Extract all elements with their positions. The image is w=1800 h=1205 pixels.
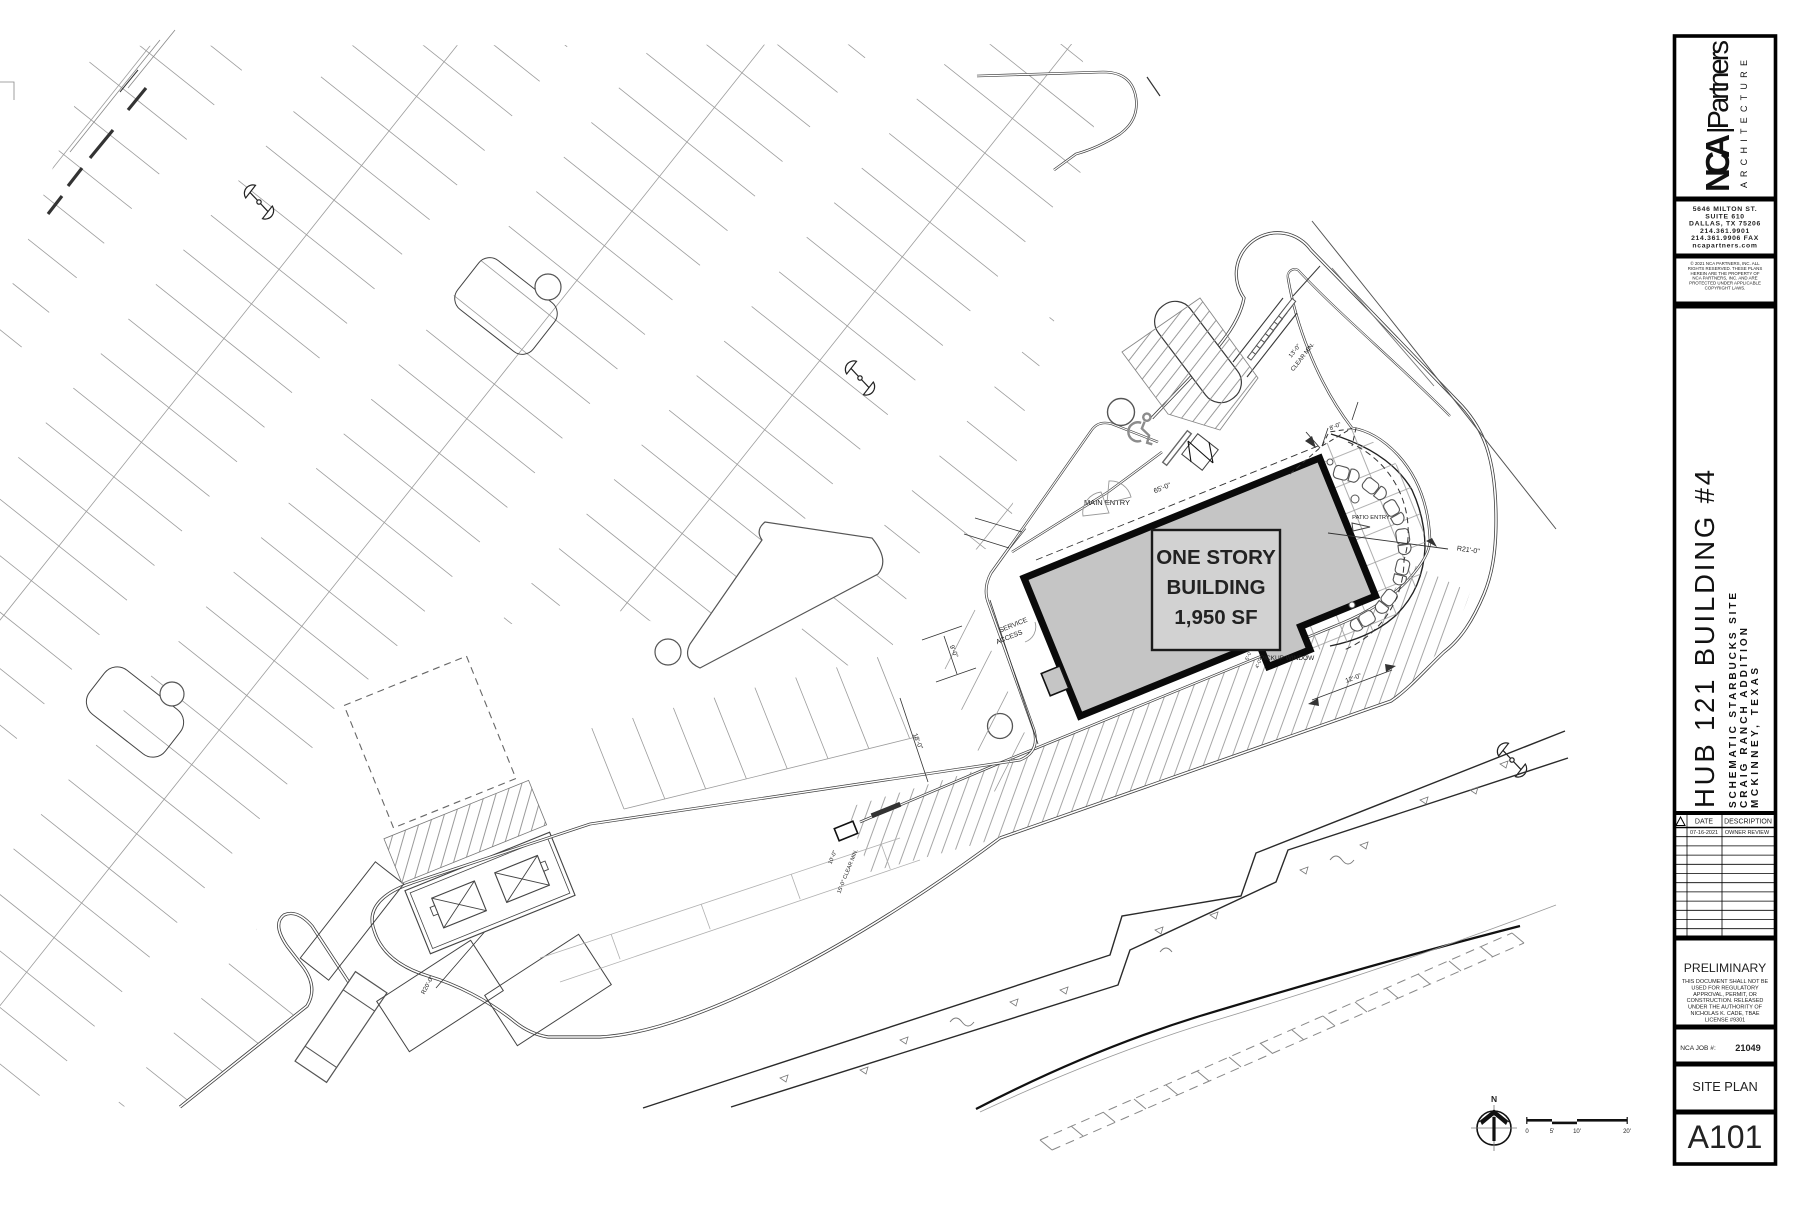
svg-text:CRAIG RANCH ADDITION: CRAIG RANCH ADDITION (1739, 628, 1750, 808)
svg-text:NCA JOB #:: NCA JOB #: (1680, 1045, 1716, 1052)
svg-text:NCA: NCA (1699, 134, 1736, 192)
svg-text:SUITE 610: SUITE 610 (1705, 213, 1745, 220)
svg-text:DALLAS, TX 75206: DALLAS, TX 75206 (1689, 221, 1761, 228)
svg-text:LICENSE #9301: LICENSE #9301 (1705, 1017, 1745, 1023)
svg-text:THIS DOCUMENT SHALL NOT BE: THIS DOCUMENT SHALL NOT BE (1682, 979, 1769, 985)
svg-text:A101: A101 (1688, 1119, 1763, 1155)
svg-text:214.361.9906 FAX: 214.361.9906 FAX (1691, 235, 1759, 242)
svg-text:PRELIMINARY: PRELIMINARY (1684, 961, 1766, 975)
svg-text:COPYRIGHT LAWS.: COPYRIGHT LAWS. (1705, 286, 1746, 291)
svg-text:UNDER THE AUTHORITY OF: UNDER THE AUTHORITY OF (1688, 1005, 1763, 1011)
svg-text:DESCRIPTION: DESCRIPTION (1724, 819, 1772, 826)
svg-text:BUILDING: BUILDING (1166, 576, 1265, 599)
svg-text:USED FOR REGULATORY: USED FOR REGULATORY (1691, 985, 1759, 991)
svg-text:OWNER REVIEW: OWNER REVIEW (1725, 830, 1770, 836)
svg-text:N: N (1491, 1094, 1497, 1104)
svg-text:HUB 121 BUILDING #4: HUB 121 BUILDING #4 (1689, 470, 1720, 808)
svg-text:21049: 21049 (1735, 1043, 1761, 1053)
svg-text:5': 5' (1550, 1129, 1554, 1135)
svg-text:PATIO ENTRY: PATIO ENTRY (1352, 515, 1390, 521)
svg-text:20': 20' (1623, 1129, 1631, 1135)
svg-text:10': 10' (1573, 1129, 1581, 1135)
svg-text:DATE: DATE (1695, 819, 1713, 826)
svg-text:|Partners: |Partners (1703, 40, 1735, 134)
svg-text:214.361.9901: 214.361.9901 (1700, 228, 1750, 235)
svg-text:NICHOLAS K. CADE, TBAE: NICHOLAS K. CADE, TBAE (1691, 1011, 1760, 1017)
svg-text:5646 MILTON ST.: 5646 MILTON ST. (1693, 206, 1758, 213)
svg-text:PICKUP WINDOW: PICKUP WINDOW (1260, 655, 1315, 662)
svg-text:1,950 SF: 1,950 SF (1174, 606, 1257, 629)
svg-text:ncapartners.com: ncapartners.com (1692, 243, 1757, 250)
svg-text:ONE STORY: ONE STORY (1156, 546, 1276, 569)
svg-text:07-16-2021: 07-16-2021 (1690, 830, 1718, 836)
svg-text:CONSTRUCTION. RELEASED: CONSTRUCTION. RELEASED (1687, 998, 1764, 1004)
svg-text:SITE PLAN: SITE PLAN (1692, 1079, 1757, 1094)
svg-text:APPROVAL, PERMIT, OR: APPROVAL, PERMIT, OR (1693, 992, 1757, 998)
